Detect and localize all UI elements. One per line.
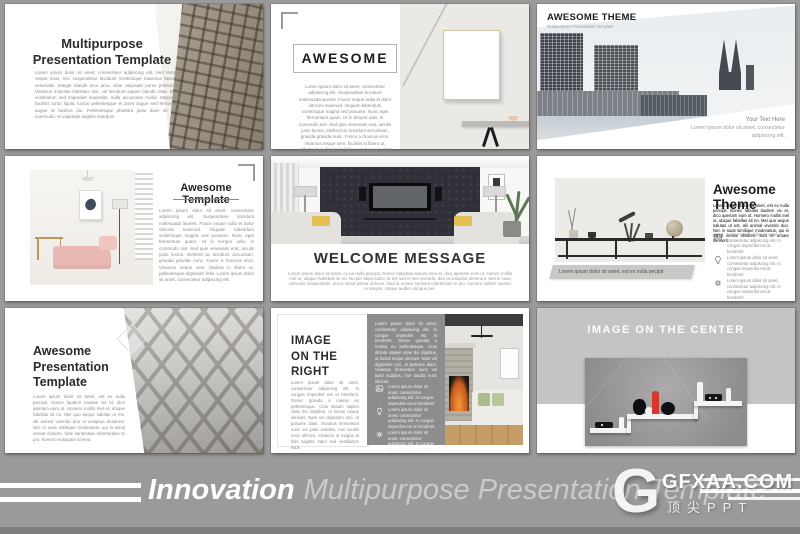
slide1-title-line2: Presentation Template [19, 52, 185, 68]
cathedral-spire [719, 39, 729, 73]
slide3-side-body: Lorem ipsum dolor sit amet, consectetur … [685, 125, 785, 140]
image-icon [713, 232, 723, 242]
tv-screen [369, 183, 431, 210]
corner-bracket-icon [238, 164, 255, 181]
table-leg [566, 241, 568, 259]
slide1-title-line1: Multipurpose [19, 36, 185, 52]
bowl [508, 116, 518, 121]
slide5-body: Lorem ipsum dolor sit amet, ex ea nulla … [287, 271, 513, 291]
slide4-title: Awesome Template [157, 182, 255, 206]
empty-picture-frame [443, 30, 500, 100]
plant-pot [503, 221, 521, 237]
black-vase [633, 399, 646, 415]
bullet-text: Lorem ipsum dolor sit amet, consectetur … [388, 384, 437, 407]
template-preview-canvas: Multipurpose Presentation Template Lorem… [0, 0, 800, 534]
footer-decor-line [0, 497, 141, 502]
wall-shelf-photo [585, 358, 747, 446]
bullet-item: Lorem ipsum dolor sit amet, consectetur … [375, 430, 437, 453]
slide-thumbnail-8[interactable]: IMAGE ON THE RIGHT Lorem ipsum dolor sit… [271, 308, 529, 453]
black-box-ornament [595, 422, 613, 428]
slide1-title: Multipurpose Presentation Template [19, 36, 185, 67]
desk-leg [490, 127, 499, 147]
black-vase [661, 402, 675, 415]
slide8-panel-body: Lorem ipsum dolor sit amet, consectetur … [375, 321, 437, 385]
ornament-dot [601, 424, 603, 426]
corner-bracket-icon [281, 12, 298, 29]
slide7-title: Awesome Presentation Template [33, 344, 145, 391]
bullet-text: Lorem ipsum dolor sit amet, consectetur … [388, 407, 437, 430]
white-bottle [619, 417, 624, 428]
floor-lamp-pole [119, 205, 121, 265]
bullet-item: Lorem ipsum dolor sit amet, consectetur … [375, 384, 437, 407]
shelf-decor-photo [555, 178, 705, 262]
ornament-dot [709, 397, 711, 399]
black-box-ornament [705, 394, 722, 401]
title-underline [173, 199, 239, 200]
bullet-text: Lorem ipsum dolor sit amet, consectetur … [727, 255, 785, 278]
yellow-pillow [312, 216, 330, 227]
gfxaa-logo-icon: G [612, 456, 660, 527]
slide9-title: IMAGE ON THE CENTER [537, 324, 795, 336]
gear-icon [375, 430, 384, 439]
bulb-icon [375, 407, 384, 416]
slide3-title: AWESOME THEME [547, 12, 636, 23]
slide8-title-line2: ON THE [291, 350, 363, 366]
fireplace [445, 348, 473, 421]
globe [666, 220, 683, 237]
table-top [555, 238, 705, 241]
crane-house-building [594, 45, 638, 97]
wall-scratch [585, 358, 628, 419]
yellow-pillow [454, 216, 472, 227]
watermark-site-name: GFXAA.COM [662, 471, 793, 494]
slide8-title-line1: IMAGE [291, 334, 363, 350]
slide-thumbnail-7[interactable]: Awesome Presentation Template Lorem ipsu… [5, 308, 263, 453]
slide8-title: IMAGE ON THE RIGHT [291, 334, 363, 381]
slide-thumbnail-4[interactable]: Awesome Template Lorem ipsum dolor sit a… [5, 156, 263, 301]
slide2-body: Lorem ipsum dolor sit amet, consectetur … [297, 84, 393, 160]
image-icon [375, 384, 384, 393]
ornament-dot [715, 397, 717, 399]
slide-thumbnail-1[interactable]: Multipurpose Presentation Template Lorem… [5, 4, 263, 149]
slide1-body: Lorem ipsum dolor sit amet, consectetur … [35, 70, 181, 120]
sofa-cushion [99, 236, 117, 251]
chandelier [471, 335, 493, 337]
crane-house-building [540, 33, 584, 91]
table-leg [666, 241, 668, 259]
bullet-item: Lorem ipsum dolor sit amet, consectetur … [375, 407, 437, 430]
living-room-photo [271, 156, 529, 244]
speaker [359, 187, 366, 201]
slide5-title: WELCOME MESSAGE [271, 250, 529, 267]
cathedral-body [719, 72, 741, 89]
wall-art-frame [79, 190, 102, 221]
telescope-tube [618, 211, 636, 223]
table-leg [37, 239, 39, 260]
table-leg [615, 241, 617, 259]
slide4-body: Lorem ipsum dolor sit amet, consectetur … [159, 208, 254, 284]
window-blinds [135, 170, 153, 260]
slide3-subtitle: Multipurpose Presentation Template [547, 24, 614, 29]
bird-artwork [83, 197, 97, 211]
wall-art-frame [500, 348, 519, 379]
pendant-lamp [82, 177, 94, 182]
white-bottle [726, 388, 731, 401]
wood-floor [445, 425, 523, 445]
floor-lamp-shade [294, 186, 317, 197]
footer-brand-bold: Innovation [148, 474, 295, 506]
slide2-title-box: AWESOME [293, 44, 397, 73]
watermark-tagline: 顶尖PPT [667, 497, 753, 516]
bullet-text: Lorem ipsum dolor sit amet, consectetur … [727, 278, 785, 301]
media-shelf [364, 218, 436, 220]
firebox-flame [449, 376, 469, 411]
cathedral-spire [731, 39, 741, 73]
slide-thumbnail-2[interactable]: AWESOME Lorem ipsum dolor sit amet, cons… [271, 4, 529, 149]
desk-top [462, 121, 529, 126]
slide6-caption: Lorem ipsum dolor sit amet, est ex nulla… [559, 265, 689, 279]
slide-thumbnail-9[interactable]: IMAGE ON THE CENTER [537, 308, 795, 453]
pink-sofa-interior-photo [30, 170, 153, 285]
green-cushion [478, 393, 490, 406]
mug [588, 232, 596, 238]
floor-lamp-shade [112, 199, 128, 209]
shelf-bar [694, 401, 742, 406]
white-bottle [697, 382, 703, 401]
slide3-side-text: Your Text Here Lorem ipsum dolor sit ame… [685, 116, 785, 140]
slide7-title-line3: Template [33, 375, 145, 391]
wall-frame-photo [400, 4, 529, 149]
bullet-item: Lorem ipsum dolor sit amet, consectetur … [713, 255, 785, 278]
red-bottle [652, 391, 659, 414]
bulb-icon [713, 255, 723, 265]
gear-icon [713, 278, 723, 288]
green-cushion [492, 393, 504, 406]
slide7-body: Lorem ipsum dolor sit amet, est ex nulla… [33, 394, 125, 443]
tv-panel [373, 186, 426, 208]
fireplace-interior-photo [445, 314, 523, 445]
slide-thumbnail-3[interactable]: AWESOME THEME Multipurpose Presentation … [537, 4, 795, 149]
bullet-item: Lorem ipsum dolor sit amet, consectetur … [713, 232, 785, 255]
slide-thumbnail-6[interactable]: Lorem ipsum dolor sit amet, est ex nulla… [537, 156, 795, 301]
slide8-title-line3: RIGHT [291, 365, 363, 381]
bullet-item: Lorem ipsum dolor sit amet, consectetur … [713, 278, 785, 301]
table-shelf [558, 255, 702, 257]
slide7-title-line2: Presentation [33, 360, 145, 376]
slide7-title-line1: Awesome [33, 344, 145, 360]
church-tower [746, 65, 754, 90]
bullet-text: Lorem ipsum dolor sit amet, consectetur … [388, 430, 437, 453]
twig [571, 208, 576, 230]
shelf-bar [590, 428, 629, 433]
footer-decor-line [0, 483, 141, 488]
slide-thumbnail-5[interactable]: WELCOME MESSAGE Lorem ipsum dolor sit am… [271, 156, 529, 301]
white-sofa [271, 212, 341, 244]
bottom-dark-strip [0, 527, 800, 534]
slide8-body: Lorem ipsum dolor sit amet, consectetur … [291, 380, 359, 451]
desk-leg [482, 127, 491, 147]
bullet-text: Lorem ipsum dolor sit amet, consectetur … [727, 232, 785, 255]
ceiling-beam [445, 314, 523, 326]
waterfront-buildings [640, 95, 707, 117]
slide3-side-title: Your Text Here [685, 116, 785, 125]
speaker [435, 187, 442, 201]
